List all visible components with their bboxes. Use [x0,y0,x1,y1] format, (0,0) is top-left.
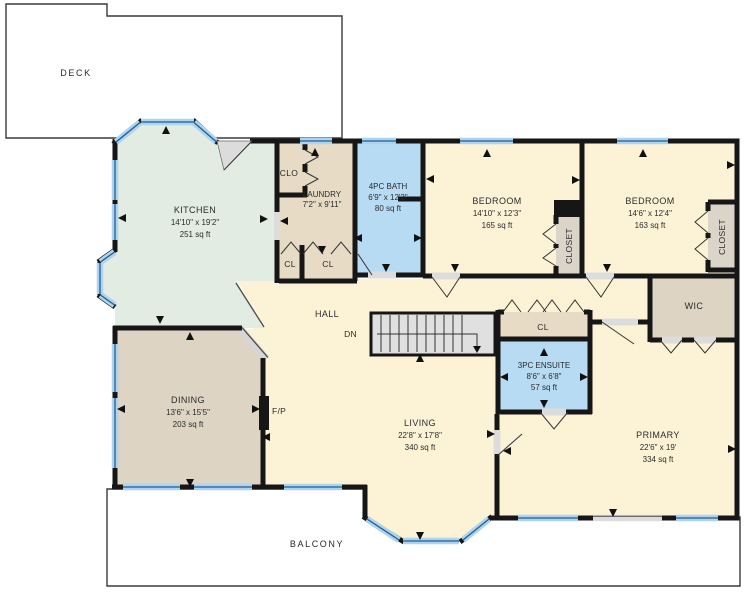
fireplace-box [259,396,269,430]
bedroom1-area: 165 sq ft [482,221,513,230]
ensuite-label: 3PC ENSUITE [518,361,570,370]
laundry-dims: 7'2" x 9'11" [303,200,342,209]
wic-label: WIC [685,301,704,311]
primary-label: PRIMARY [636,430,680,440]
floor-plan-page: DECK KITCHEN 14'10" x 19'2" 251 sq ft CL… [0,0,745,596]
balcony-label: BALCONY [290,539,344,549]
bath-dims: 6'9" x 12'3" [368,193,408,202]
fireplace-label: F/P [272,406,286,416]
primary-area: 334 sq ft [643,455,674,464]
living-dims: 22'8" x 17'8" [398,431,442,440]
closet-cl-a-label: CL [284,259,295,269]
closet1-label: CLOSET [564,228,574,264]
hall-closet-label: CL [537,322,548,332]
clo-label: CLO [280,168,298,178]
ensuite-area: 57 sq ft [531,383,558,392]
kitchen-label: KITCHEN [174,205,216,215]
bedroom1-label: BEDROOM [472,196,521,206]
bath-area: 80 sq ft [375,204,402,213]
stairs-dn-label: DN [344,329,357,339]
kitchen-dims: 14'10" x 19'2" [171,218,219,227]
dining-area: 203 sq ft [173,420,204,429]
hall-label: HALL [315,309,339,319]
bedroom2-dims: 14'6" x 12'4" [628,209,672,218]
laundry-label: LAUNDRY [303,190,342,199]
bedroom1-dims: 14'10" x 12'3" [473,209,521,218]
deck-label: DECK [60,68,91,78]
bath-label: 4PC BATH [369,182,408,191]
floor-plan-drawing: DECK KITCHEN 14'10" x 19'2" 251 sq ft CL… [0,0,745,596]
living-area: 340 sq ft [405,443,436,452]
primary-dims: 22'6" x 19' [640,443,677,452]
bedroom2-label: BEDROOM [625,196,674,206]
closet2-label: CLOSET [717,219,727,255]
dining-label: DINING [171,395,205,405]
closet1-wall-chunk [554,200,582,217]
closet-cl-b-label: CL [322,259,333,269]
living-label: LIVING [404,418,436,428]
dining-dims: 13'6" x 15'5" [166,408,210,417]
kitchen-area: 251 sq ft [180,230,211,239]
ensuite-dims: 8'6" x 6'8" [527,372,562,381]
bedroom2-area: 163 sq ft [635,221,666,230]
deck-area [6,4,342,138]
